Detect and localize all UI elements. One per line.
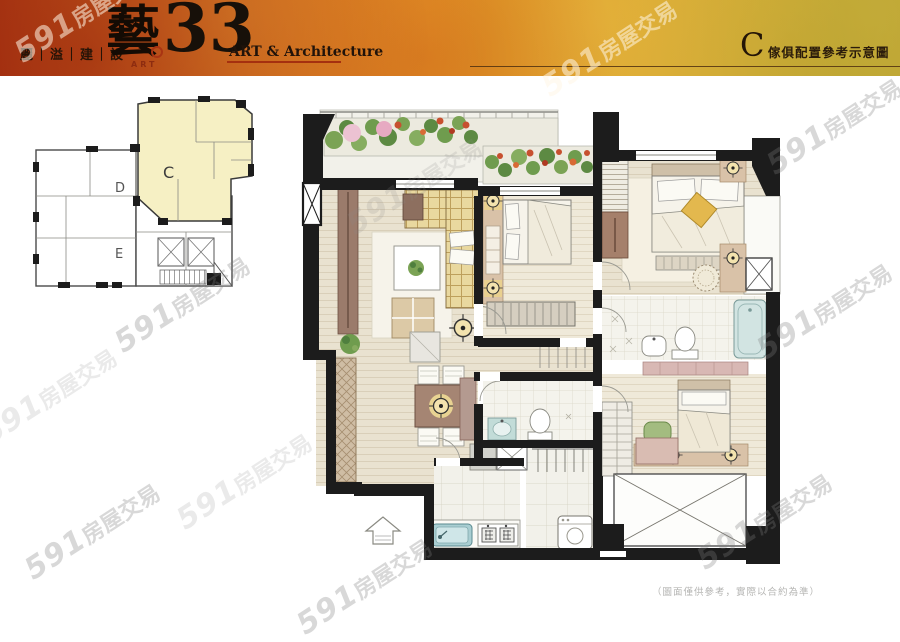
sofa-cushion <box>449 231 474 247</box>
floor-plan-page: { "header": { "company": "麗｜溢｜建｜設", "log… <box>0 0 900 612</box>
floor-plan-canvas: C D E <box>0 0 900 612</box>
kitchen <box>428 520 520 548</box>
side-ledge-shaft <box>746 258 772 290</box>
bed3-headboard <box>678 380 730 390</box>
dining-chair <box>418 428 439 446</box>
rattan-chair <box>693 265 719 291</box>
toilet <box>530 409 550 433</box>
bed2-pillow <box>505 234 520 260</box>
keyplan-left-wing <box>36 150 136 286</box>
disclaimer-note: （圖面僅供參考，實際以合約為準） <box>652 584 820 598</box>
key-plan: C D E <box>33 96 254 288</box>
master-wardrobe <box>602 156 628 212</box>
corridor-floor <box>478 347 595 374</box>
bed2-pillow <box>505 204 520 230</box>
keyplan-label-c: C <box>163 163 174 182</box>
main-plan <box>303 110 780 564</box>
master-pillow <box>657 179 695 202</box>
bed2-duvet <box>528 200 571 264</box>
desk <box>636 438 678 464</box>
keyplan-label-e: E <box>115 247 123 262</box>
sofa-armrest <box>403 194 423 220</box>
floor-plant <box>340 334 360 354</box>
hall-cabinet <box>460 378 476 440</box>
entry-cabinet <box>334 358 356 482</box>
planter-flowers-right <box>483 146 595 184</box>
keyplan-unit-c-area <box>138 100 252 221</box>
sofa-cushion <box>449 249 474 265</box>
bedroom2 <box>483 191 575 326</box>
bed3-pillow <box>682 392 726 405</box>
bed3-duvet <box>678 410 730 452</box>
bed2-dresser <box>487 302 575 326</box>
keyplan-label-d: D <box>115 181 125 196</box>
toilet <box>675 327 695 351</box>
table-plant <box>408 260 424 276</box>
master-pillow <box>701 179 739 201</box>
dining-chair <box>418 366 439 384</box>
entry-arrow-icon <box>366 517 400 544</box>
void-shaft <box>614 474 746 546</box>
